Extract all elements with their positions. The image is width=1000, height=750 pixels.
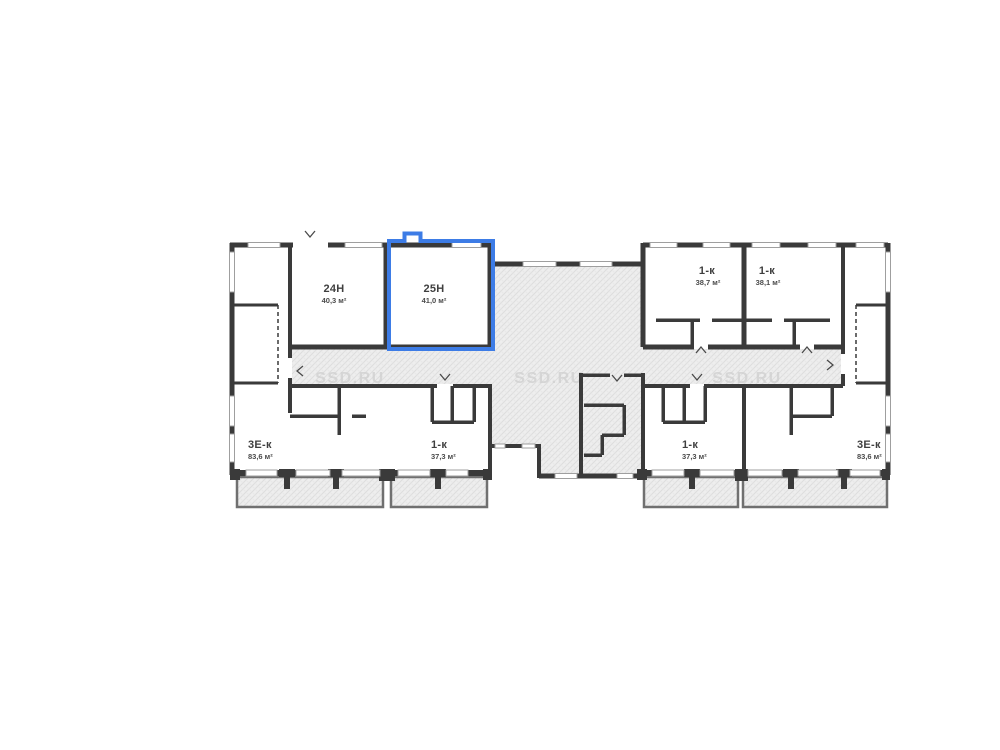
unit-1k-bl-hitarea[interactable] xyxy=(389,388,488,471)
unit-25n-hitarea[interactable] xyxy=(389,243,492,347)
balcony-3ek-br xyxy=(743,477,887,507)
unit-1k-tl-hitarea[interactable] xyxy=(645,248,742,345)
floor-plan-page: SSD.RU SSD.RU SSD.RU xyxy=(0,0,1000,750)
balcony-3ek-bl xyxy=(237,477,383,507)
door-mark-24n-entrance xyxy=(305,231,315,237)
unit-1k-br-hitarea[interactable] xyxy=(645,388,742,471)
unit-3ek-bl-hitarea[interactable] xyxy=(232,388,387,471)
unit-24n-hitarea[interactable] xyxy=(292,248,384,347)
unit-1k-tr-hitarea[interactable] xyxy=(746,248,841,345)
unit-3ek-br-hitarea[interactable] xyxy=(746,388,886,471)
watermark-text: SSD.RU xyxy=(514,370,583,387)
floor-plan-svg: SSD.RU SSD.RU SSD.RU xyxy=(0,0,1000,750)
